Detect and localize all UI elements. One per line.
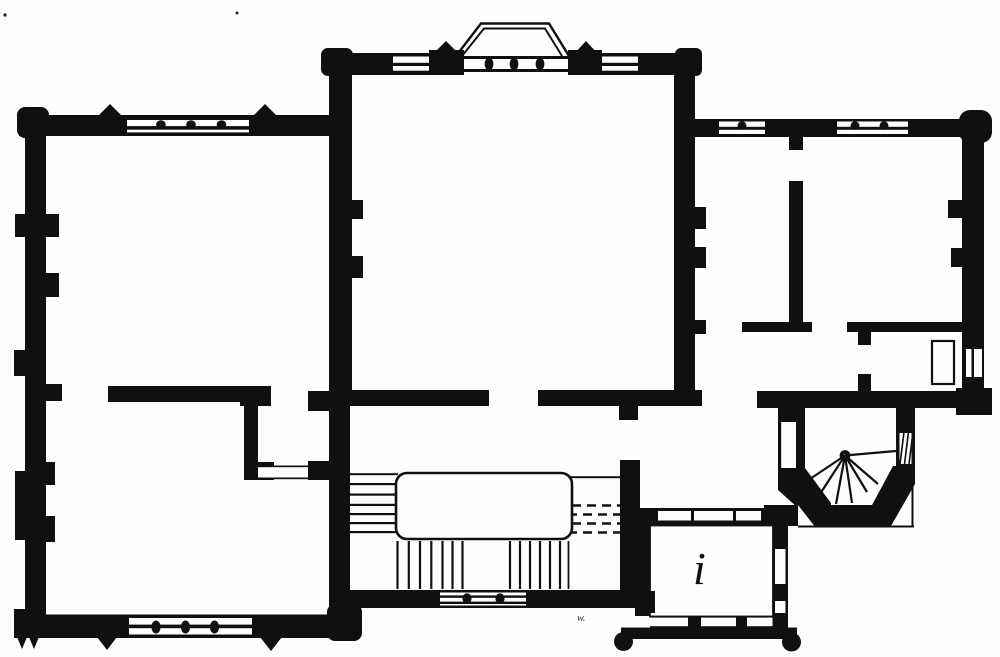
svg-text:i: i <box>693 543 706 594</box>
svg-text:w.: w. <box>577 613 585 624</box>
